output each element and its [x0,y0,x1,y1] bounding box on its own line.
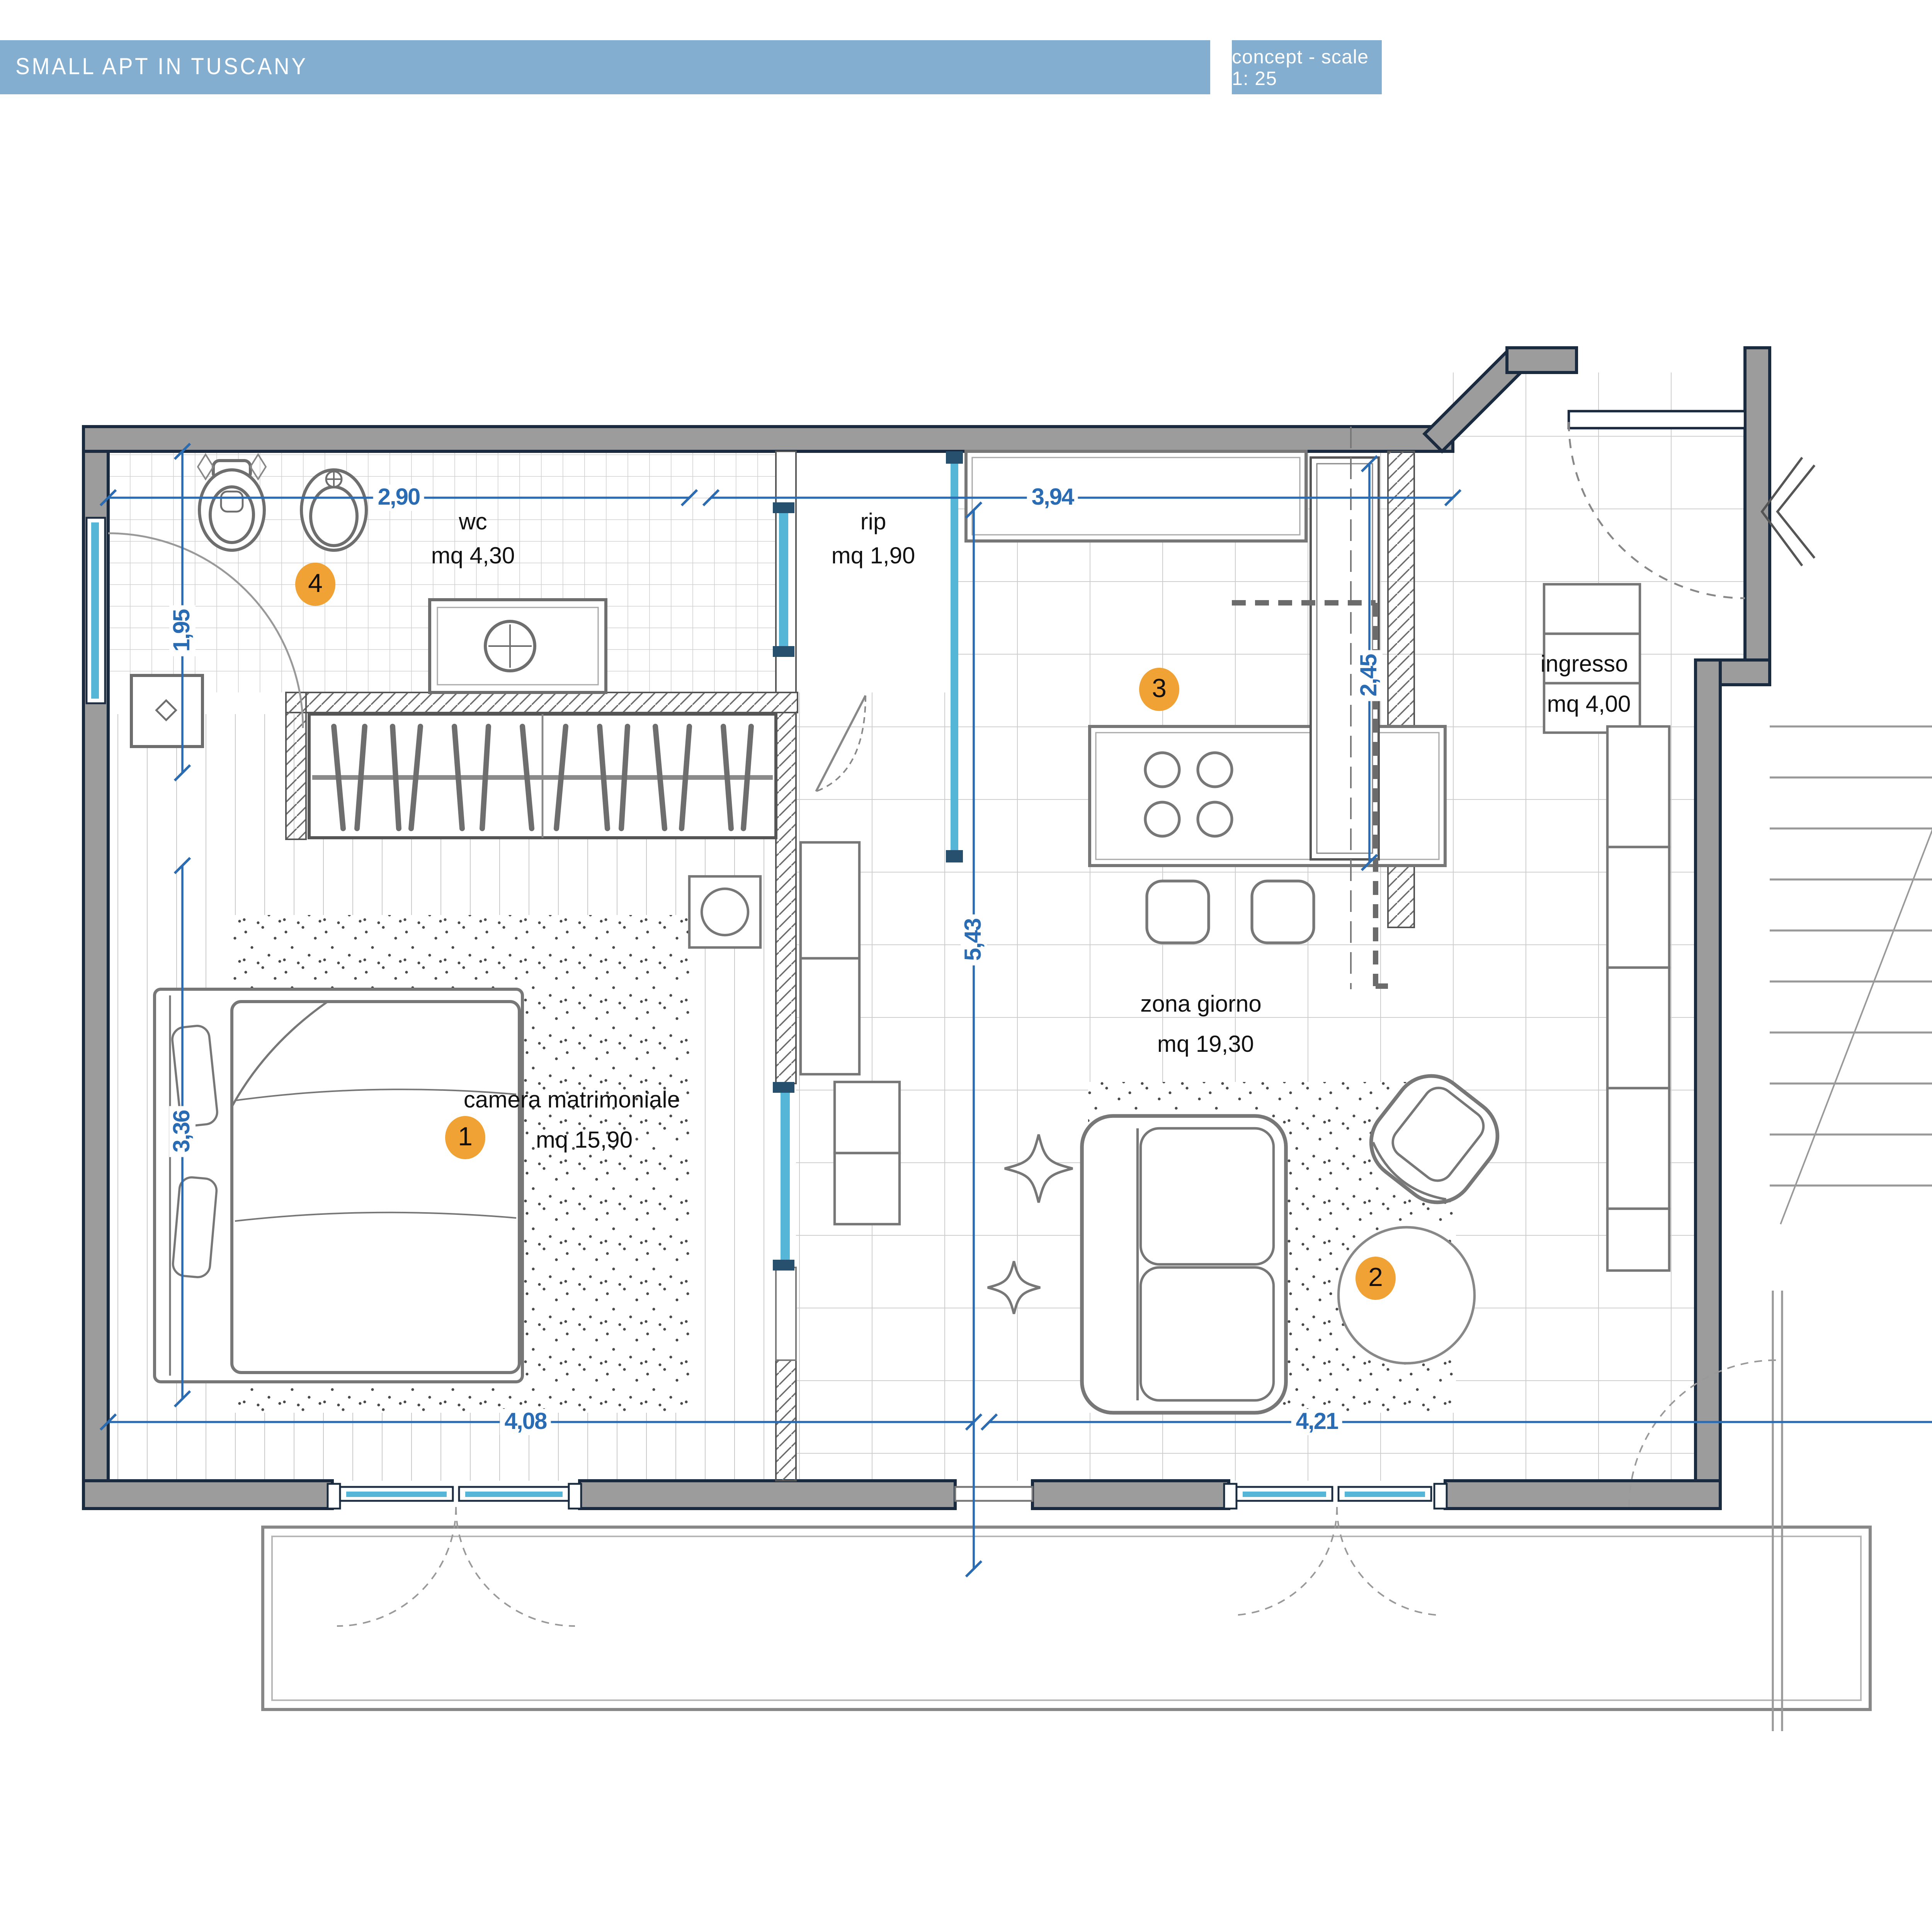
room-label-rip: rip [861,511,886,534]
bedroom-french-door [328,1484,581,1626]
room-area-wc: mq 4,30 [431,545,515,568]
dim-bedroom-width: 4,08 [500,1409,551,1435]
plan-marker-bagno: 4 [295,563,335,606]
concept-sheet: SMALL APT IN TUSCANY concept - scale 1: … [0,0,1932,1917]
room-label-wc: wc [459,511,487,534]
dim-wc-depth: 1,95 [169,605,196,657]
round-rug [1338,1227,1475,1363]
storage-column [1607,726,1669,1271]
wardrobe [309,714,776,838]
small-window [955,1487,1032,1501]
shower-icon [131,675,202,747]
bedroom-side-table [689,876,760,947]
room-label-ingresso: ingresso [1541,653,1628,676]
bidet-icon [301,470,366,550]
room-area-rip: mq 1,90 [832,545,915,568]
dim-living-width: 4,21 [1291,1409,1343,1435]
dim-wc-width: 2,90 [373,485,425,511]
room-area-zona-giorno: mq 19,30 [1157,1033,1254,1056]
plan-marker-camera: 1 [445,1116,485,1159]
plan-marker-zona-giorno: 2 [1355,1257,1396,1300]
bath-window [87,518,105,703]
bedroom-sliding-door [773,1082,796,1360]
dim-bedroom-depth: 3,36 [169,1106,196,1157]
dim-entry-depth: 2,45 [1356,650,1383,701]
room-label-zona-giorno: zona giorno [1140,993,1262,1016]
washbasin-icon [430,600,606,692]
room-area-ingresso: mq 4,00 [1547,693,1631,716]
dim-living-depth: 5,43 [961,914,987,966]
sofa [1082,1116,1286,1413]
dim-kitchen-width: 3,94 [1027,485,1078,511]
room-label-camera: camera matrimoniale [464,1089,680,1112]
floor-plan: wc mq 4,30 rip mq 1,90 ingresso mq 4,00 … [0,0,1932,1917]
room-area-camera: mq 15,90 [536,1129,633,1152]
living-french-door [1224,1484,1447,1615]
double-bed [155,989,522,1382]
plan-marker-cucina: 3 [1139,668,1179,711]
terrace [263,1527,1870,1709]
wc-sliding-door [773,451,796,692]
